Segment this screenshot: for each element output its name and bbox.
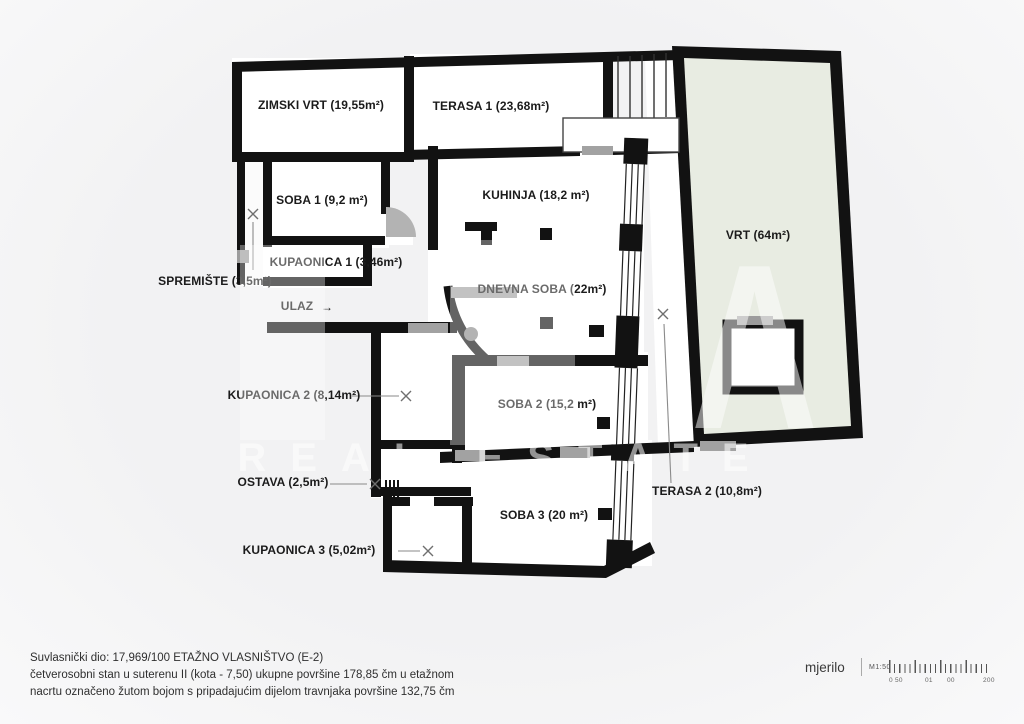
scale-ruler-major-ticks xyxy=(889,660,991,673)
room-label-terasa-1: TERASA 1 (23,68m²) xyxy=(433,99,550,113)
scale-tick-label: 0 50 xyxy=(889,677,903,684)
room-label-terasa-2: TERASA 2 (10,8m²) xyxy=(652,484,762,498)
floor-plan-drawing: ZIMSKI VRT (19,55m²) TERASA 1 (23,68m²) … xyxy=(0,0,1024,724)
floor-plan-page: ZIMSKI VRT (19,55m²) TERASA 1 (23,68m²) … xyxy=(0,0,1024,724)
ownership-note-line2: četverosobni stan u suterenu II (kota - … xyxy=(30,667,454,684)
room-label-soba-3: SOBA 3 (20 m²) xyxy=(500,508,588,522)
ownership-note: Suvlasnički dio: 17,969/100 ETAŽNO VLASN… xyxy=(30,650,454,701)
watermark-caption: REAL ESTATE xyxy=(237,436,772,480)
scale-ratio: M1:50 xyxy=(869,664,891,671)
watermark: A REAL ESTATE xyxy=(237,216,818,480)
scale-ruler xyxy=(889,660,991,674)
scale-tick-label: 01 xyxy=(925,677,933,684)
ownership-note-line1: Suvlasnički dio: 17,969/100 ETAŽNO VLASN… xyxy=(30,650,454,667)
scale-label: mjerilo xyxy=(805,660,845,675)
room-label-kupaonica-3: KUPAONICA 3 (5,02m²) xyxy=(243,543,376,557)
scale-bar: mjerilo M1:50 0 50 01 00 200 xyxy=(805,658,1015,692)
room-label-zimski-vrt: ZIMSKI VRT (19,55m²) xyxy=(258,98,384,112)
room-label-soba-1: SOBA 1 (9,2 m²) xyxy=(276,193,368,207)
scale-tick-label: 00 xyxy=(947,677,955,684)
scale-tick-label: 200 xyxy=(983,677,995,684)
room-label-kuhinja: KUHINJA (18,2 m²) xyxy=(482,188,589,202)
scale-divider xyxy=(861,658,862,676)
ownership-note-line3: nacrtu označeno žutom bojom s pripadajuć… xyxy=(30,684,454,701)
